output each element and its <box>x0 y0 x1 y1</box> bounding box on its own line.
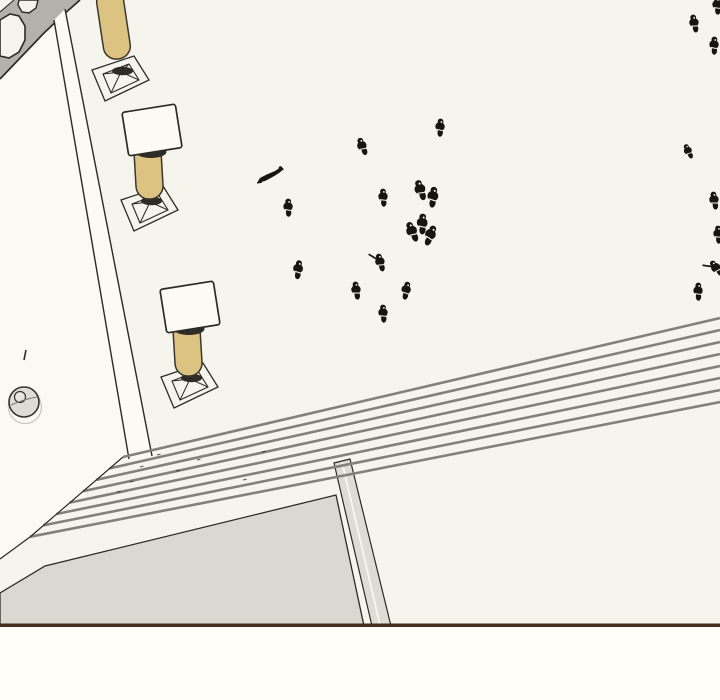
column-capital <box>122 104 182 156</box>
person-head-highlight <box>383 307 385 309</box>
tread-mark <box>157 454 161 455</box>
tread-mark <box>117 491 121 492</box>
tread-mark <box>243 479 247 480</box>
column-capital <box>160 281 220 333</box>
panel-border-bottom <box>0 624 720 628</box>
tread-mark <box>197 459 201 460</box>
comic-panel <box>0 0 720 700</box>
tread-mark <box>140 466 144 467</box>
cloak-hem <box>257 182 262 183</box>
well-basin <box>9 387 39 417</box>
tread-mark <box>262 451 266 452</box>
tread-mark <box>176 470 180 471</box>
scene-canvas <box>0 0 720 700</box>
cloaked-figure-head <box>279 166 283 170</box>
person-head-highlight <box>383 191 385 193</box>
shaft-foot-ring <box>112 67 133 75</box>
tread-mark <box>130 481 134 482</box>
